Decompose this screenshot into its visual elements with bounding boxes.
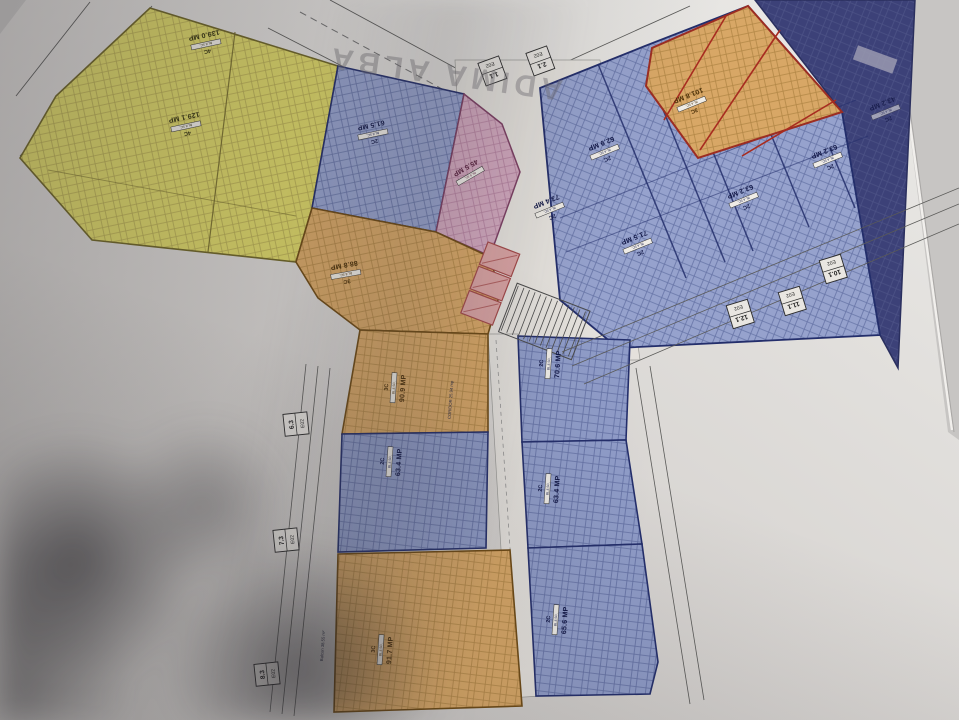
axis-marker-7-3: 7.3 E02 xyxy=(273,528,299,552)
svg-text:8.3: 8.3 xyxy=(259,669,267,679)
svg-text:7.3: 7.3 xyxy=(278,535,286,545)
unit-orange-91 xyxy=(334,550,522,712)
unit-blue-63a xyxy=(338,432,488,552)
svg-text:2C: 2C xyxy=(380,457,386,464)
axis-marker-8-3: 8.3 E02 xyxy=(254,662,280,686)
svg-text:E02: E02 xyxy=(270,668,277,678)
floor-plan-photo: 4C BL.6 SC. 139.0 MP 4C BL.6 SC. 129.1 M… xyxy=(0,0,959,720)
unit-orange-90 xyxy=(342,330,488,434)
svg-text:3C: 3C xyxy=(384,383,390,390)
svg-text:2C: 2C xyxy=(538,484,544,491)
svg-text:2C: 2C xyxy=(539,359,545,366)
svg-text:3C: 3C xyxy=(371,645,377,652)
svg-text:E02: E02 xyxy=(299,418,306,428)
floor-plan-drawing: 4C BL.6 SC. 139.0 MP 4C BL.6 SC. 129.1 M… xyxy=(0,0,959,720)
axis-marker-6-3: 6.3 E02 xyxy=(283,412,309,436)
svg-text:3C: 3C xyxy=(343,277,351,284)
svg-text:E02: E02 xyxy=(289,534,296,544)
svg-text:6.3: 6.3 xyxy=(288,419,296,429)
svg-text:2C: 2C xyxy=(546,615,552,622)
unit-blue-63b xyxy=(522,440,642,548)
